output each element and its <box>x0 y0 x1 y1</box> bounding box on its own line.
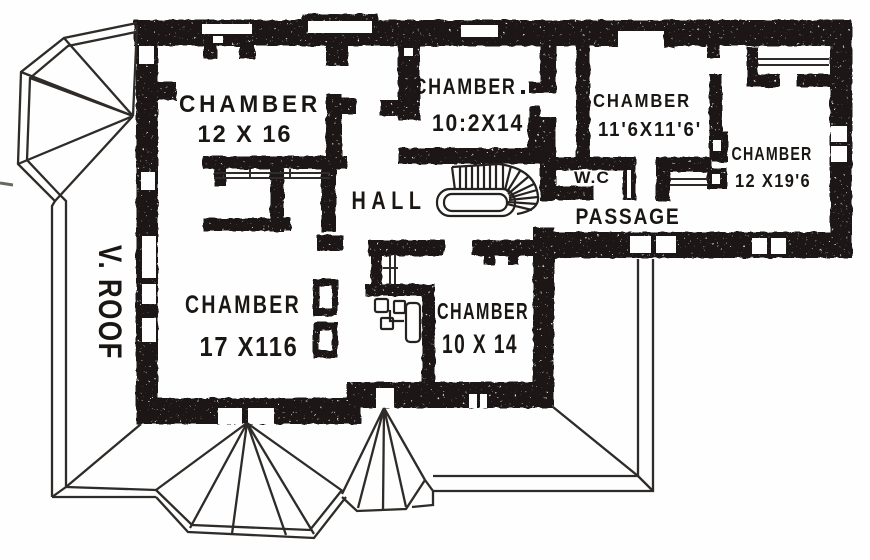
svg-text:CHAMBER: CHAMBER <box>732 144 813 164</box>
svg-text:CHAMBER: CHAMBER <box>437 298 529 324</box>
svg-text:11'6X11'6': 11'6X11'6' <box>598 119 702 141</box>
svg-text:CHAMBER: CHAMBER <box>185 291 301 319</box>
svg-text:HALL: HALL <box>352 187 427 215</box>
svg-text:V. ROOF: V. ROOF <box>92 245 128 360</box>
svg-text:17 X116: 17 X116 <box>200 331 299 362</box>
svg-text:12 X19'6: 12 X19'6 <box>735 171 811 191</box>
svg-text:10 X 14: 10 X 14 <box>442 329 518 359</box>
svg-text:12 X 16: 12 X 16 <box>198 121 293 148</box>
svg-text:CHAMBER: CHAMBER <box>414 74 517 99</box>
svg-text:10:2X14: 10:2X14 <box>432 110 524 137</box>
svg-text:CHAMBER: CHAMBER <box>179 91 321 118</box>
svg-text:W.C: W.C <box>574 168 610 187</box>
svg-text:PASSAGE: PASSAGE <box>576 204 681 229</box>
svg-text:CHAMBER: CHAMBER <box>593 91 691 111</box>
